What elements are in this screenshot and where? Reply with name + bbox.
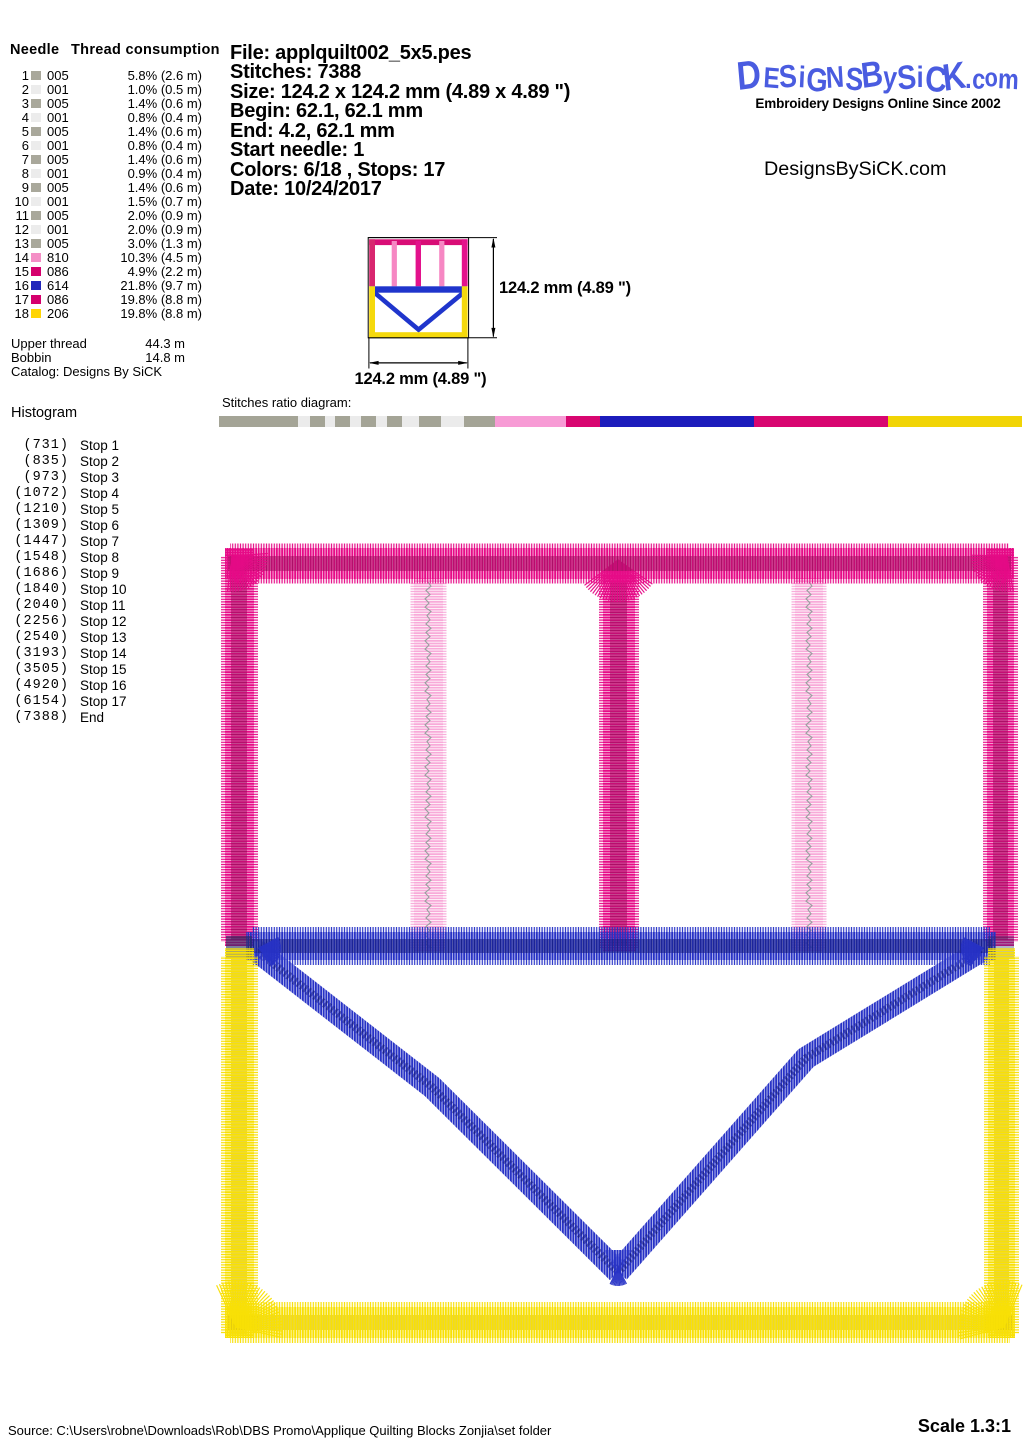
- svg-text:N: N: [825, 59, 845, 94]
- svg-text:K: K: [940, 54, 968, 100]
- svg-text:m: m: [997, 64, 1019, 96]
- svg-text:o: o: [984, 63, 999, 94]
- svg-text:B: B: [859, 54, 885, 97]
- svg-text:124.2 mm (4.89 "): 124.2 mm (4.89 "): [499, 279, 631, 297]
- svg-text:S: S: [896, 57, 918, 97]
- svg-text:i: i: [917, 60, 924, 94]
- svg-text:S: S: [778, 58, 798, 96]
- svg-text:.: .: [965, 64, 972, 94]
- svg-text:D: D: [736, 52, 763, 99]
- svg-text:124.2 mm (4.89 "): 124.2 mm (4.89 "): [355, 370, 487, 388]
